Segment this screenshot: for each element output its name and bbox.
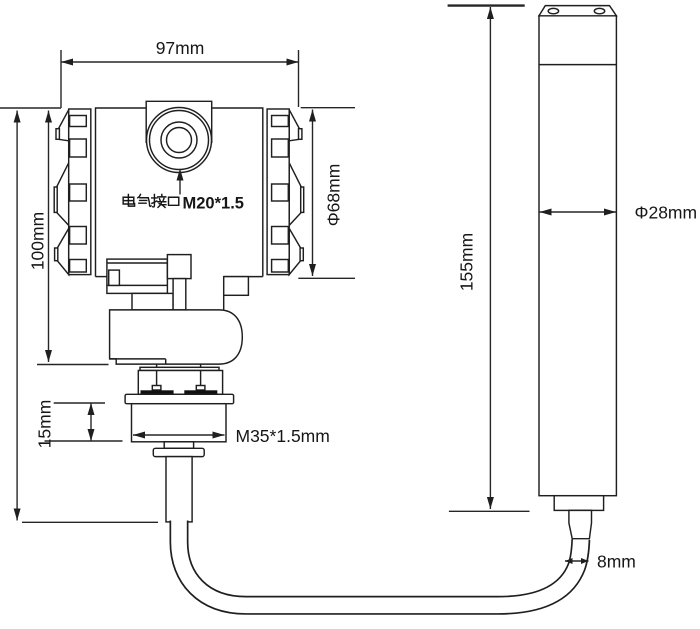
svg-text:15mm: 15mm bbox=[35, 400, 55, 449]
svg-text:8mm: 8mm bbox=[597, 552, 636, 572]
svg-text:Φ68mm: Φ68mm bbox=[324, 164, 344, 227]
svg-text:M35*1.5mm: M35*1.5mm bbox=[236, 426, 330, 446]
svg-text:M20*1.5: M20*1.5 bbox=[183, 195, 244, 213]
svg-text:100mm: 100mm bbox=[28, 212, 48, 270]
svg-text:Φ28mm: Φ28mm bbox=[635, 203, 698, 223]
svg-text:155mm: 155mm bbox=[457, 233, 477, 291]
svg-text:97mm: 97mm bbox=[156, 38, 205, 58]
